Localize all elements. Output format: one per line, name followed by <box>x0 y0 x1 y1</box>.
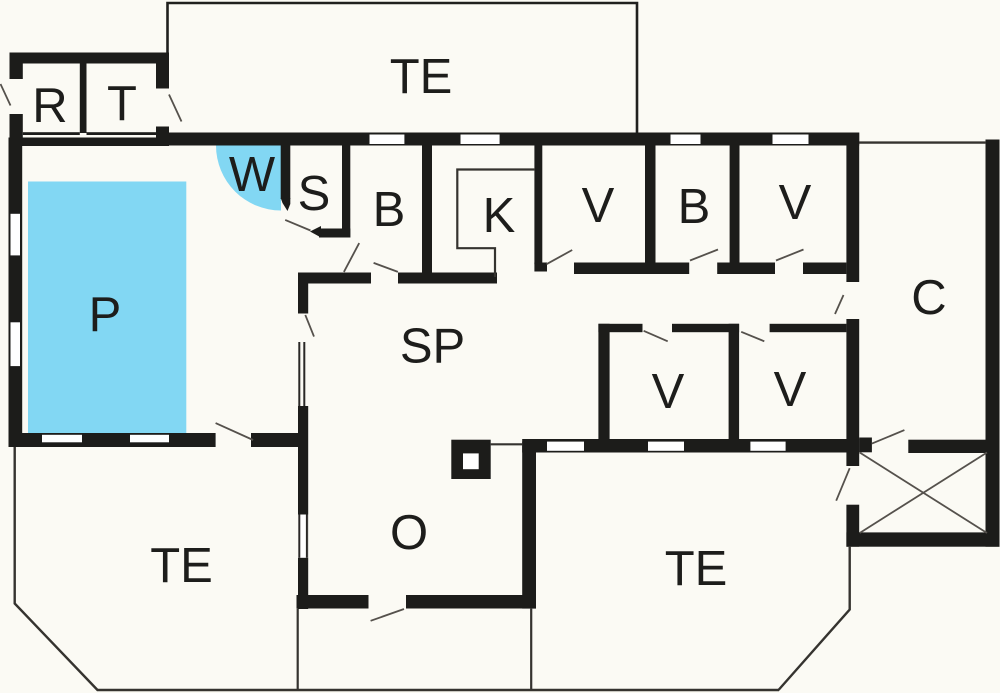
svg-text:T: T <box>107 77 137 131</box>
svg-text:TE: TE <box>665 542 728 596</box>
svg-text:TE: TE <box>150 539 213 593</box>
svg-text:V: V <box>779 176 812 230</box>
svg-text:W: W <box>229 148 276 202</box>
svg-text:B: B <box>373 183 406 237</box>
svg-text:S: S <box>298 167 331 221</box>
svg-text:V: V <box>774 363 807 417</box>
svg-text:O: O <box>390 506 428 560</box>
svg-text:C: C <box>911 271 946 325</box>
svg-text:V: V <box>652 365 685 419</box>
svg-text:V: V <box>582 179 615 233</box>
svg-text:SP: SP <box>400 320 465 374</box>
svg-text:K: K <box>483 189 516 243</box>
svg-text:B: B <box>678 180 711 234</box>
svg-text:P: P <box>89 288 122 342</box>
svg-text:R: R <box>32 79 67 133</box>
svg-text:TE: TE <box>390 50 453 104</box>
